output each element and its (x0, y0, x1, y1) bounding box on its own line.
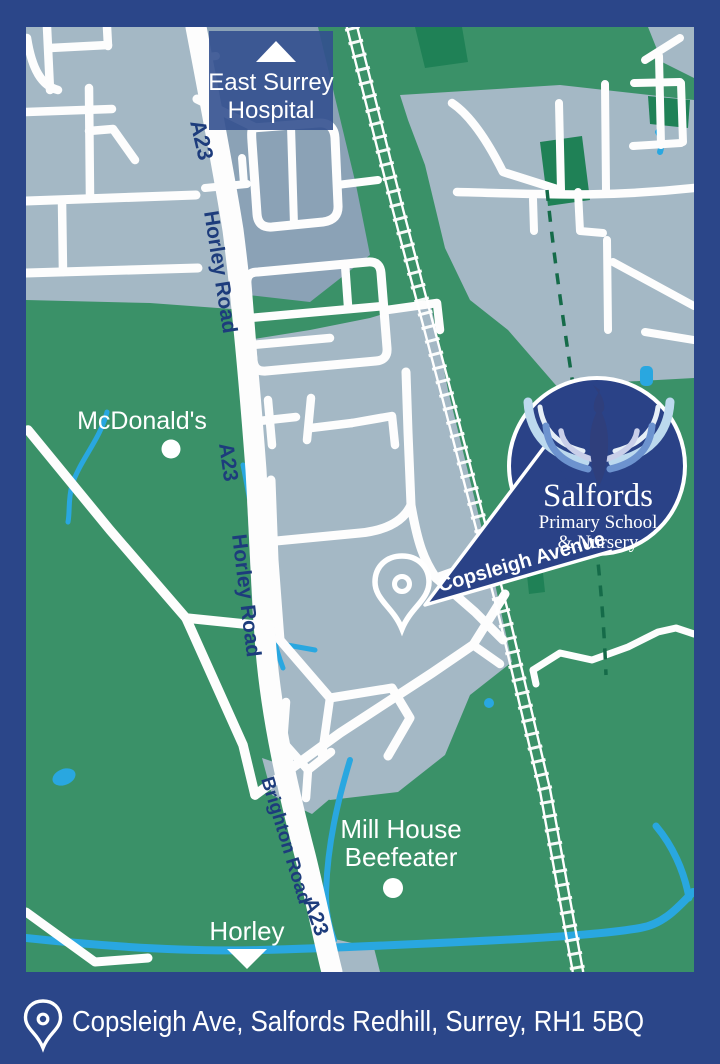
hospital-label-line1: East Surrey (208, 69, 333, 96)
footer-bar: Copsleigh Ave, Salfords Redhill, Surrey,… (0, 972, 720, 1064)
badge-subtitle-line2: & Nursery (558, 532, 639, 553)
poi-dot (383, 878, 403, 898)
hospital-label-box: East Surrey Hospital (208, 31, 333, 130)
mcdonalds-label: McDonald's (77, 407, 207, 435)
horley-label: Horley (209, 916, 284, 946)
hospital-label-line2: Hospital (228, 97, 315, 124)
badge-school-name: Salfords (543, 478, 653, 514)
mill-house-label-line1: Mill House (340, 814, 461, 844)
poi-dot (162, 440, 181, 459)
mill-house-label-line2: Beefeater (345, 842, 458, 872)
map-canvas: A23 Horley Road A23 Horley Road Brighton… (0, 0, 720, 1064)
footer-address: Copsleigh Ave, Salfords Redhill, Surrey,… (72, 1006, 644, 1038)
badge-subtitle-line1: Primary School (539, 512, 658, 533)
map-flyer: A23 Horley Road A23 Horley Road Brighton… (0, 0, 720, 1064)
